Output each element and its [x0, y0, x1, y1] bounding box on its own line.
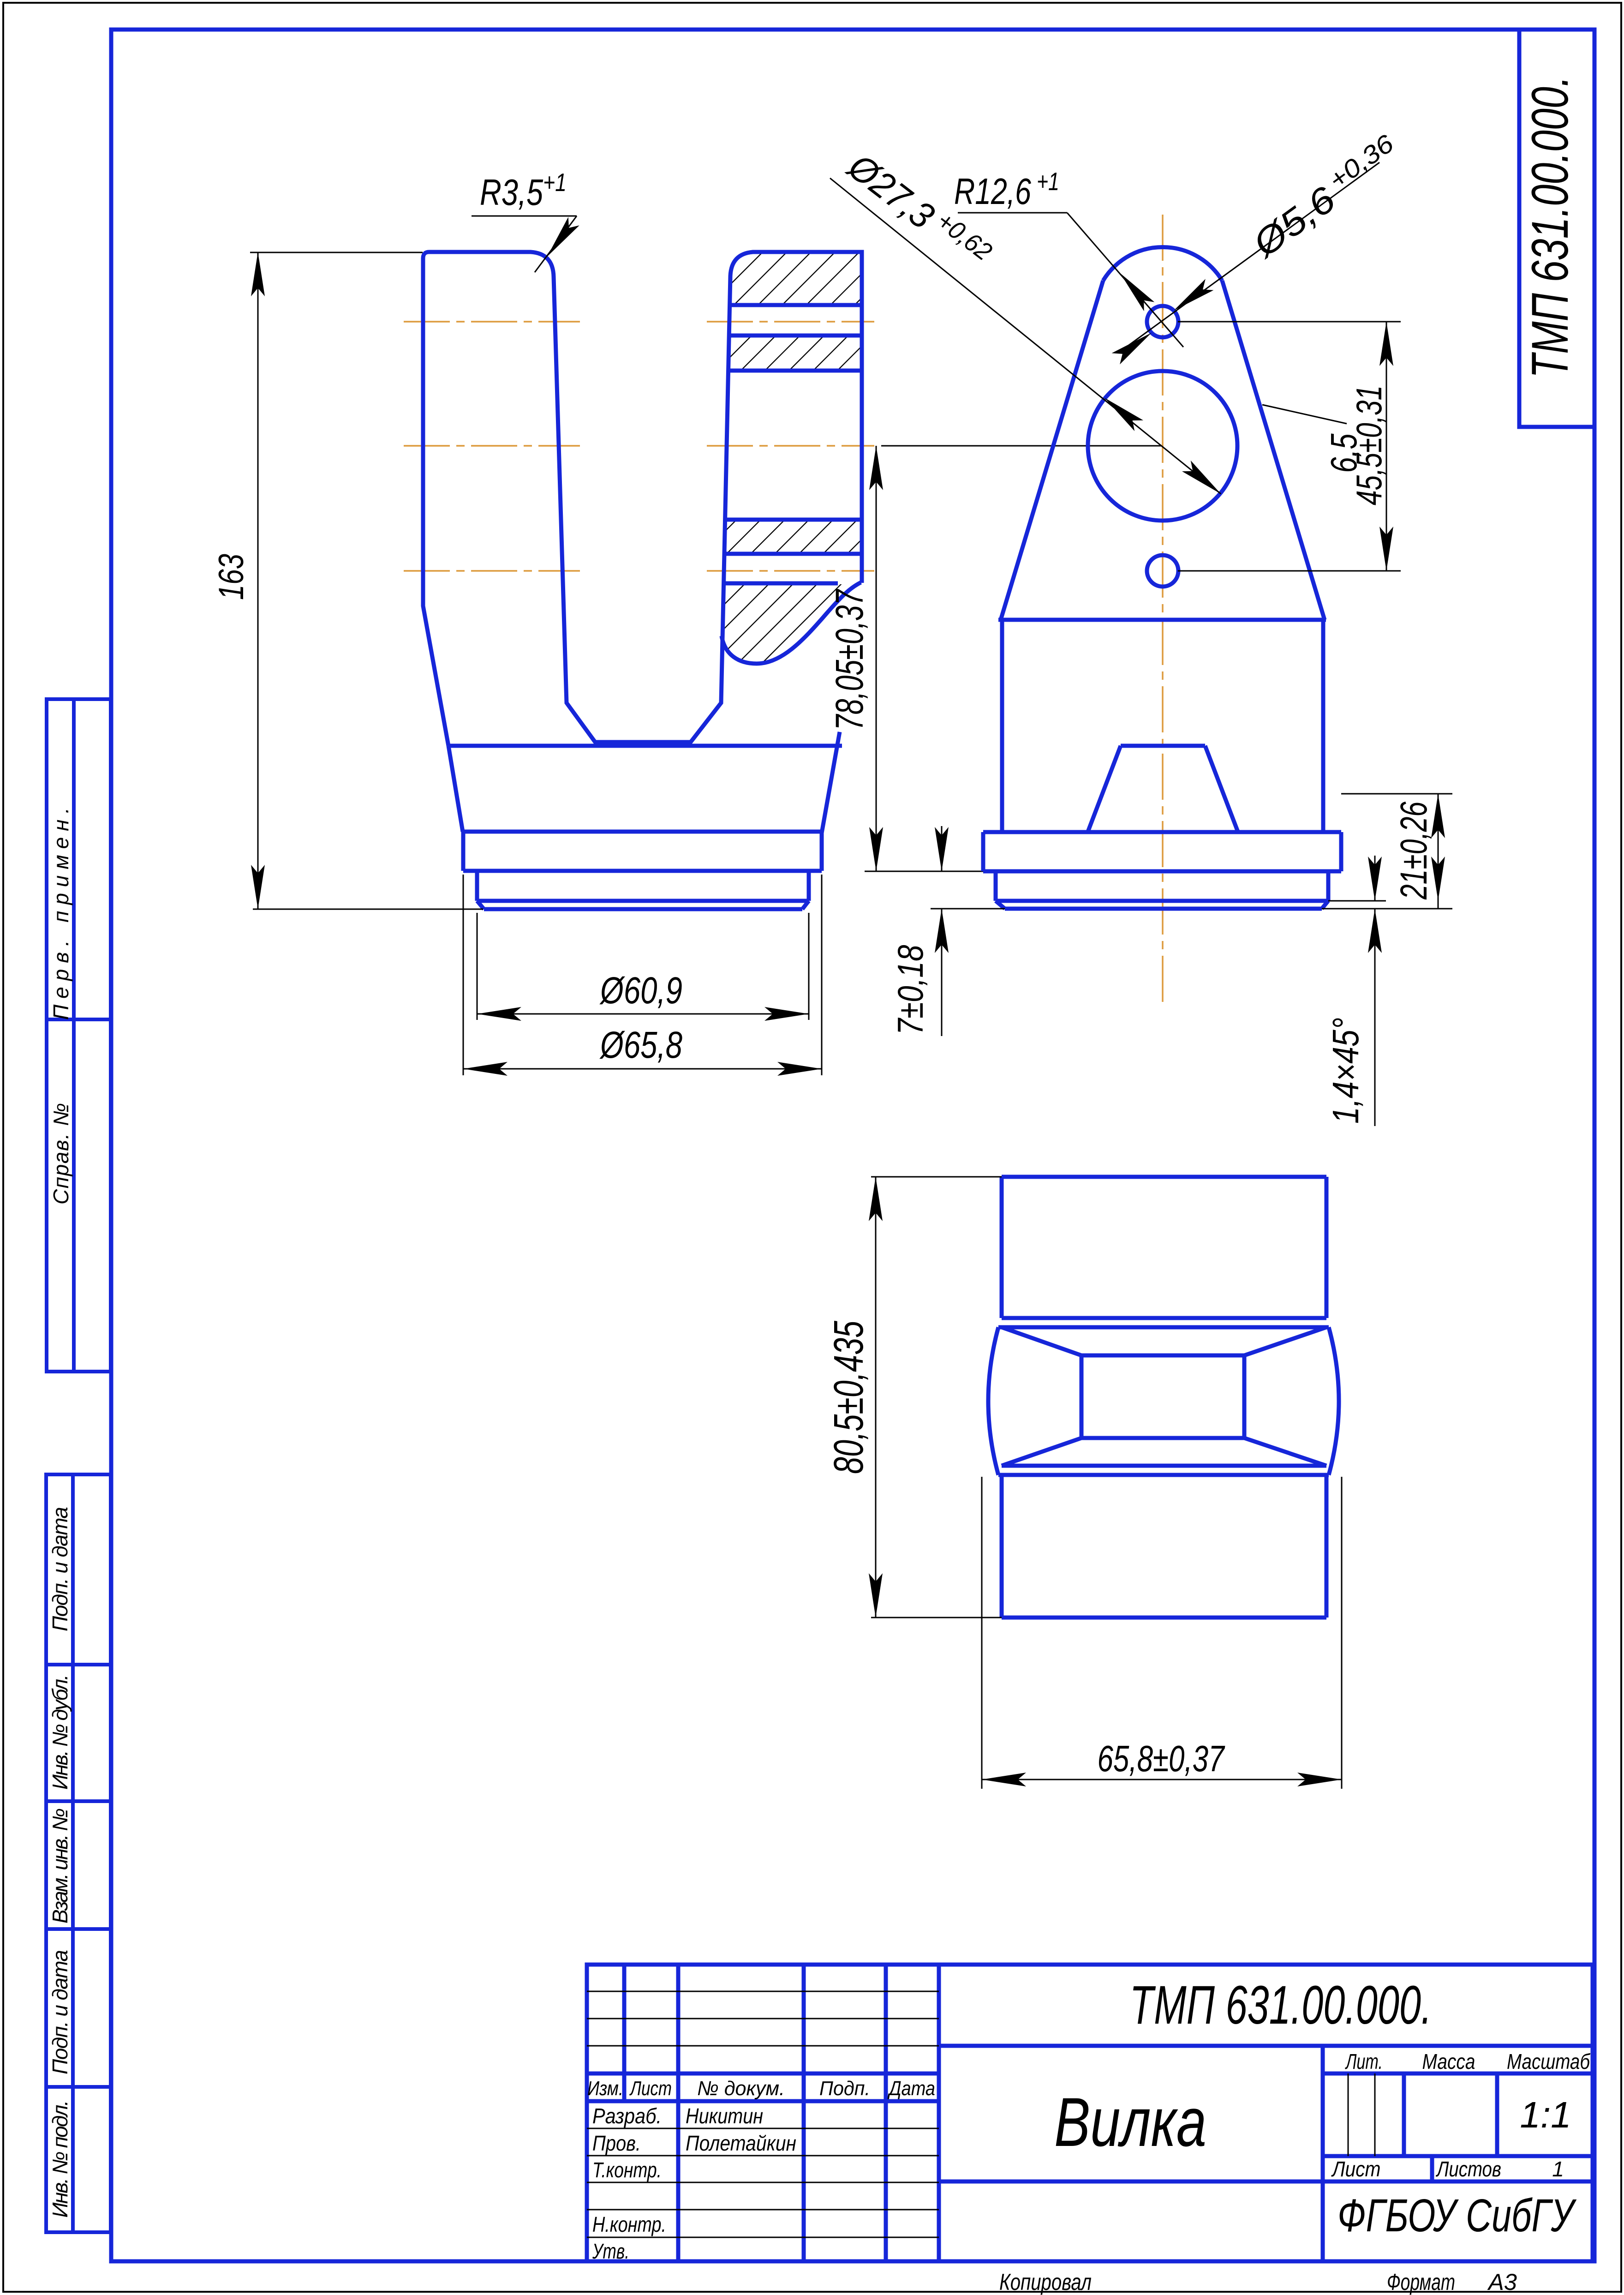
svg-text:45,5±0,31: 45,5±0,31 [1349, 385, 1389, 505]
svg-text:Т.контр.: Т.контр. [592, 2158, 662, 2182]
svg-text:Подп.: Подп. [819, 2077, 870, 2100]
svg-text:Подп. и дата: Подп. и дата [48, 1950, 72, 2074]
svg-text:Перв. примен.: Перв. примен. [49, 808, 73, 1020]
svg-text:65,8±0,37: 65,8±0,37 [1098, 1738, 1225, 1779]
svg-text:Взам. инв. №: Взам. инв. № [48, 1808, 72, 1923]
svg-text:1: 1 [1552, 2157, 1564, 2181]
svg-text:Листов: Листов [1435, 2157, 1501, 2181]
svg-text:Лит.: Лит. [1345, 2049, 1383, 2073]
svg-text:Полетайкин: Полетайкин [686, 2131, 796, 2155]
svg-text:А3: А3 [1487, 2269, 1517, 2295]
svg-text:7±0,18: 7±0,18 [890, 945, 931, 1035]
svg-text:ТМП 631.00.000.: ТМП 631.00.000. [1130, 1975, 1432, 2036]
svg-text:Разраб.: Разраб. [592, 2104, 662, 2128]
svg-text:Копировал: Копировал [999, 2269, 1092, 2295]
svg-text:ТМП 631.00.000.: ТМП 631.00.000. [1521, 76, 1579, 378]
svg-text:Пров.: Пров. [592, 2131, 641, 2155]
svg-text:Н.контр.: Н.контр. [592, 2212, 666, 2236]
svg-text:Вилка: Вилка [1054, 2083, 1206, 2161]
svg-text:Ø65,8: Ø65,8 [599, 1024, 683, 1066]
svg-text:80,5±0,435: 80,5±0,435 [826, 1320, 872, 1474]
svg-text:Ø60,9: Ø60,9 [599, 970, 682, 1012]
svg-text:Подп. и дата: Подп. и дата [48, 1507, 72, 1631]
svg-text:Дата: Дата [887, 2077, 935, 2100]
svg-text:21±0,26: 21±0,26 [1393, 802, 1435, 900]
svg-text:Масса: Масса [1422, 2049, 1475, 2073]
svg-text:Масштаб: Масштаб [1507, 2049, 1591, 2073]
svg-text:Лист: Лист [629, 2077, 672, 2100]
svg-text:Никитин: Никитин [686, 2104, 763, 2128]
svg-text:Утв.: Утв. [592, 2239, 629, 2263]
svg-text:Лист: Лист [1331, 2157, 1381, 2181]
svg-text:Изм.: Изм. [587, 2077, 623, 2100]
svg-text:Справ. №: Справ. № [49, 1103, 73, 1204]
svg-text:1:1: 1:1 [1520, 2094, 1571, 2135]
svg-text:78,05±0,37: 78,05±0,37 [828, 588, 871, 730]
svg-text:Инв. № подл.: Инв. № подл. [48, 2100, 72, 2218]
svg-text:Инв. № дубл.: Инв. № дубл. [48, 1674, 72, 1790]
svg-text:163: 163 [212, 554, 251, 600]
svg-text:ФГБОУ СибГУ: ФГБОУ СибГУ [1337, 2190, 1577, 2241]
svg-text:1,4×45°: 1,4×45° [1325, 1018, 1366, 1124]
svg-text:№ докум.: № докум. [697, 2077, 785, 2100]
svg-text:Формат: Формат [1387, 2269, 1455, 2295]
